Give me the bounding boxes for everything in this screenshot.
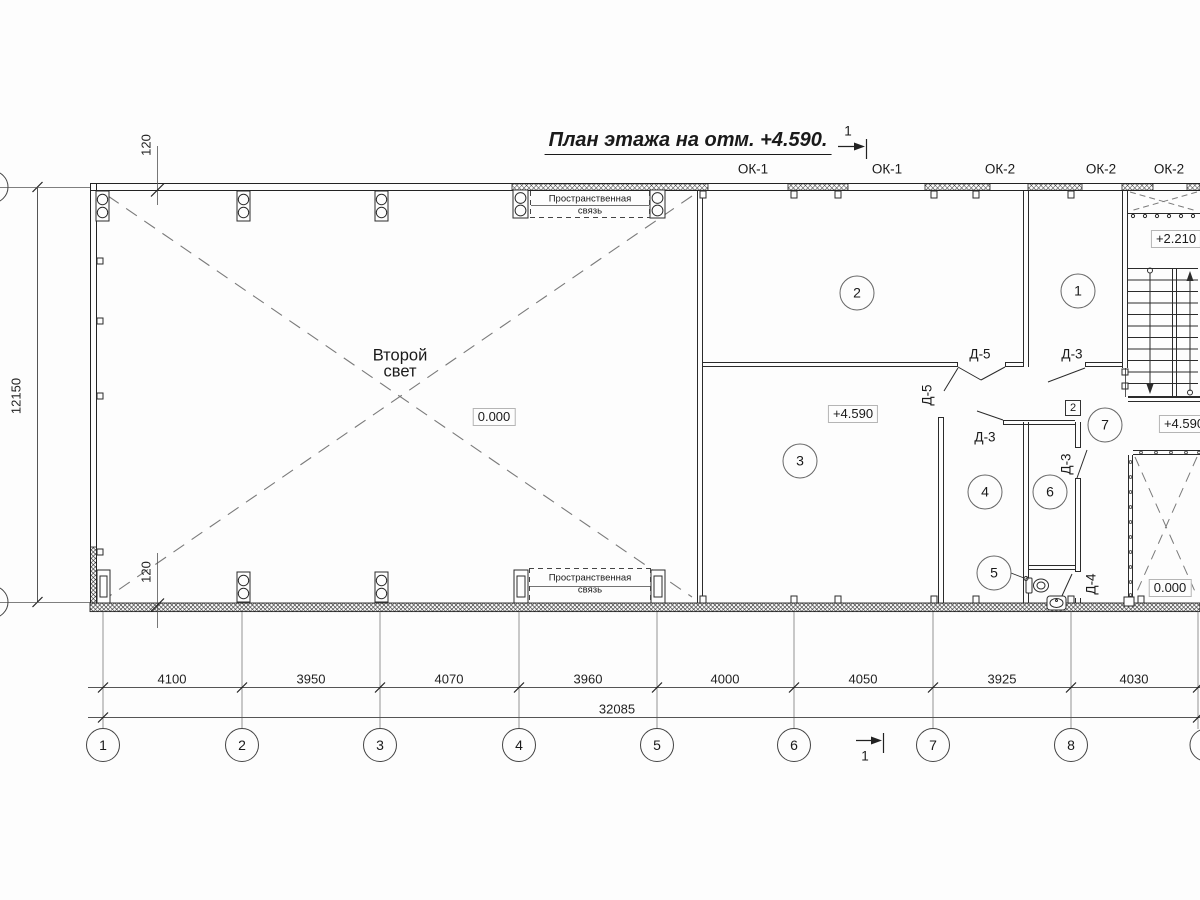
room-bubble-1: 1 [1061, 274, 1096, 309]
space-frame-label-bottom-2: связь [578, 585, 602, 596]
toilet-icon [1026, 578, 1049, 593]
column [237, 572, 250, 602]
elevation-stair-hall: +4.590 [1159, 415, 1200, 433]
staircase [1128, 192, 1200, 402]
window-mark-ok1-b: ОК-1 [872, 162, 902, 177]
room-bubble-7: 7 [1088, 408, 1123, 443]
elevation-void: 0.000 [1149, 579, 1192, 597]
window-mark-ok2-b: ОК-2 [1086, 162, 1116, 177]
room5-leader [1011, 573, 1028, 581]
second-light-label-line2: свет [383, 363, 416, 382]
door-mark-d3-top: Д-3 [1061, 347, 1082, 362]
dim-bay-1: 4100 [158, 672, 187, 687]
door-mark-d3-corridor: Д-3 [974, 430, 995, 445]
axis-bubble-3: 3 [363, 728, 397, 762]
stair-arrow-down [1147, 268, 1154, 394]
elevation-room3: +4.590 [828, 405, 878, 423]
outer-walls [90, 183, 1200, 612]
column [375, 572, 388, 602]
dim-bay-7: 3925 [988, 672, 1017, 687]
section-mark-bottom [856, 733, 884, 753]
space-frame-braces [529, 191, 651, 604]
axis-bubble-6: 6 [777, 728, 811, 762]
dimension-lines [0, 146, 1200, 761]
room-bubble-3: 3 [783, 444, 818, 479]
space-frame-label-top-1: Пространственная [549, 194, 632, 205]
room-bubble-5: 5 [977, 556, 1012, 591]
axis-bubble-8: 8 [1054, 728, 1088, 762]
dim-offset-top: 120 [139, 134, 154, 156]
dim-bay-6: 4050 [849, 672, 878, 687]
axis-bubble-7: 7 [916, 728, 950, 762]
dim-offset-bottom: 120 [139, 561, 154, 583]
door-mark-d4: Д-4 [1084, 573, 1099, 594]
column [513, 190, 528, 218]
columns [96, 190, 665, 603]
column [514, 570, 528, 603]
space-frame-label-top-2: связь [578, 206, 602, 217]
axis-bubble-4: 4 [502, 728, 536, 762]
floor-plan-sheet: План этажа на отм. +4.590. 1 1 ОК-1 ОК-1… [0, 0, 1200, 900]
elevation-landing: +2.210 [1151, 230, 1200, 248]
window-mark-ok2-a: ОК-2 [985, 162, 1015, 177]
room-bubble-2: 2 [840, 276, 875, 311]
dim-bay-5: 4000 [711, 672, 740, 687]
dim-bay-8: 4030 [1120, 672, 1149, 687]
column [97, 570, 110, 603]
column [96, 191, 109, 221]
door-mark-d3-side: Д-3 [1059, 453, 1074, 474]
door-mark-d5-top: Д-5 [969, 347, 990, 362]
dim-bay-3: 4070 [435, 672, 464, 687]
column [375, 191, 388, 221]
dim-bay-2: 3950 [297, 672, 326, 687]
wall-anchors [97, 191, 1144, 603]
dim-total: 32085 [599, 702, 635, 717]
column [237, 191, 250, 221]
column [650, 190, 665, 218]
axis-bubble-1: 1 [86, 728, 120, 762]
door-mark-d5-side: Д-5 [920, 384, 935, 405]
window-mark-ok2-c: ОК-2 [1154, 162, 1184, 177]
section-label-top: 1 [844, 124, 852, 139]
room-bubble-4: 4 [968, 475, 1003, 510]
stair-arrow-up [1187, 271, 1194, 395]
room-bubble-6: 6 [1033, 475, 1068, 510]
axis-bubble-5: 5 [640, 728, 674, 762]
section-mark-top [838, 139, 867, 159]
interior-walls [698, 191, 1128, 603]
column [651, 570, 665, 603]
axis-bubble-2: 2 [225, 728, 259, 762]
space-frame-label-bottom-1: Пространственная [549, 573, 632, 584]
elevation-big-room: 0.000 [473, 408, 516, 426]
dim-bay-4: 3960 [574, 672, 603, 687]
double-height-cross [108, 196, 692, 597]
section-label-bottom: 1 [861, 749, 869, 764]
sink-icon [1047, 596, 1066, 610]
dim-height: 12150 [9, 378, 24, 414]
drawing-title: План этажа на отм. +4.590. [545, 129, 832, 155]
node-marker-2: 2 [1065, 400, 1081, 416]
window-mark-ok1-a: ОК-1 [738, 162, 768, 177]
